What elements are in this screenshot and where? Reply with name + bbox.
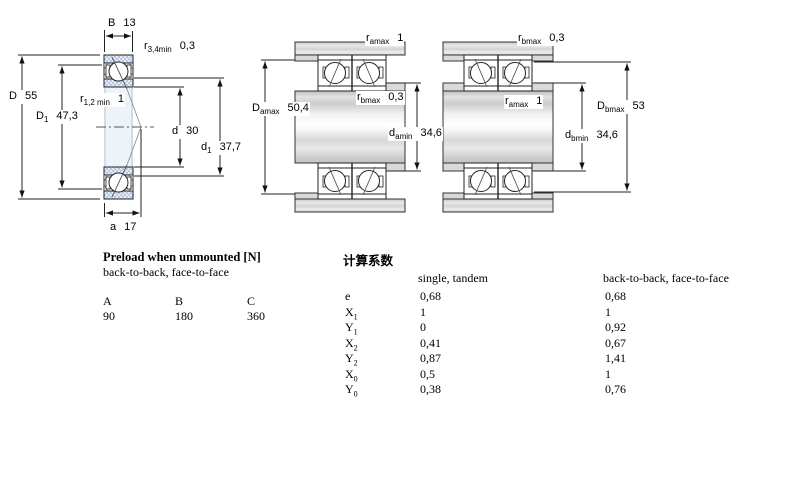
dim-label-B: B13 [107, 17, 137, 31]
dim-label-d1: d137,7 [200, 141, 242, 155]
dim-label-ramax-top: ramax1 [365, 32, 404, 46]
factor-value-paired: 0,67 [605, 336, 783, 352]
factor-value-paired: 0,92 [605, 320, 783, 336]
factors-col1-header: single, tandem [418, 271, 488, 286]
dim-label-a: a17 [109, 221, 137, 235]
factor-value-single: 0,68 [420, 289, 605, 305]
preload-value-C: 360 [247, 309, 353, 324]
factor-symbol: X1 [345, 305, 420, 321]
factor-value-single: 0,87 [420, 351, 605, 367]
dim-label-Damax: Damax50,4 [251, 102, 310, 116]
dim-label-rbmax-top: rbmax0,3 [517, 32, 566, 46]
dim-label-D1: D147,3 [35, 110, 79, 124]
factor-value-paired: 1,41 [605, 351, 783, 367]
factor-symbol: X2 [345, 336, 420, 352]
dim-label-D: D55 [8, 90, 38, 104]
dim-label-dbmin: dbmin34,6 [564, 129, 619, 143]
factor-symbol: Y2 [345, 351, 420, 367]
factor-symbol: Y0 [345, 382, 420, 398]
preload-subtitle: back-to-back, face-to-face [103, 265, 229, 280]
dim-label-r12: r1,2 min1 [79, 93, 125, 107]
factor-value-paired: 0,76 [605, 382, 783, 398]
single-bearing-section [96, 55, 154, 199]
factor-value-single: 1 [420, 305, 605, 321]
factor-value-single: 0,38 [420, 382, 605, 398]
factor-value-paired: 1 [605, 305, 783, 321]
factor-symbol: e [345, 289, 420, 305]
factor-value-single: 0 [420, 320, 605, 336]
dim-label-ramax-inner: ramax1 [504, 95, 543, 109]
dim-label-d: d30 [171, 125, 199, 139]
mounted-pair-view-2 [443, 42, 631, 212]
factor-symbol: X0 [345, 367, 420, 383]
dim-label-rbmax-inner: rbmax0,3 [356, 91, 405, 105]
dim-label-damin: damin34,6 [388, 127, 443, 141]
preload-value-A: 90 [103, 309, 175, 324]
factors-col2-header: back-to-back, face-to-face [603, 271, 729, 286]
bearing-datasheet-page: B13 r3,4min0,3 D55 D147,3 r1,2 min1 d30 … [0, 0, 800, 500]
preload-table: Preload when unmounted [N] back-to-back,… [103, 250, 353, 265]
factors-title: 计算系数 [343, 250, 783, 269]
preload-title: Preload when unmounted [N] [103, 250, 353, 265]
factor-value-paired: 0,68 [605, 289, 783, 305]
dim-label-r34: r3,4min0,3 [143, 40, 196, 54]
factor-value-single: 0,5 [420, 367, 605, 383]
factor-value-paired: 1 [605, 367, 783, 383]
preload-value-B: 180 [175, 309, 247, 324]
calculation-factors-table: 计算系数 single, tandem back-to-back, face-t… [343, 250, 783, 410]
factor-symbol: Y1 [345, 320, 420, 336]
preload-header-B: B [175, 294, 247, 309]
preload-header-A: A [103, 294, 175, 309]
factor-value-single: 0,41 [420, 336, 605, 352]
dim-label-Dbmax: Dbmax53 [596, 100, 646, 114]
preload-header-C: C [247, 294, 353, 309]
